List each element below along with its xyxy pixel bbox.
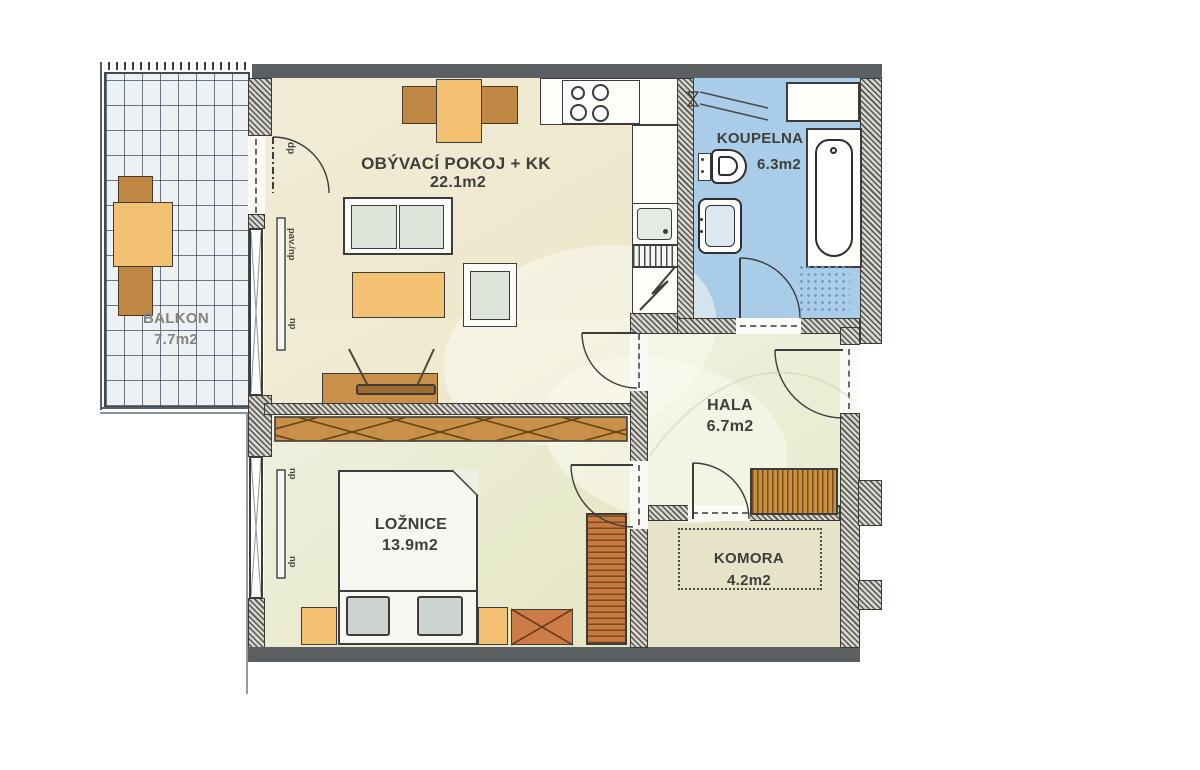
fridge (632, 267, 678, 315)
living-hall-door-jamb (638, 334, 640, 388)
burner-icon (571, 86, 585, 100)
storage-label: KOMORA (714, 550, 784, 567)
wall-left-mid (248, 214, 265, 229)
bath-mat (798, 264, 850, 312)
sink-tap-icon (663, 229, 668, 234)
bedroom-hall-door-jamb (638, 465, 640, 525)
entrance-door-opening (840, 345, 860, 413)
storage-area: 4.2m2 (727, 572, 771, 589)
balcony-railing (100, 62, 252, 70)
bathtub-inner (815, 139, 853, 257)
balcony-area: 7.7m2 (154, 331, 198, 348)
wall-right-bathroom (860, 78, 882, 344)
bedroom-label: LOŽNICE (375, 516, 447, 534)
sofa-cushion (399, 205, 444, 249)
burner-icon (592, 84, 609, 101)
living-room-area: 22.1m2 (430, 174, 486, 192)
hall-wardrobe (750, 468, 838, 515)
wall-left-upper (248, 78, 272, 136)
hall-area: 6.7m2 (707, 418, 754, 436)
balcony-edge-left (100, 62, 102, 410)
balcony-edge-bottom (100, 407, 250, 409)
wall-kitchen-corner (630, 313, 678, 334)
bathroom-door-jamb (740, 325, 797, 327)
washbasin-inner (705, 205, 735, 247)
burner-icon (570, 104, 587, 121)
coffee-table (352, 272, 445, 318)
balcony-chair (118, 262, 153, 316)
tv (356, 384, 436, 395)
kitchen-counter-side (632, 125, 678, 205)
dining-chair (480, 86, 518, 124)
sofa-cushion (351, 205, 397, 249)
toilet-dot (701, 158, 704, 161)
hall-label: HALA (707, 397, 753, 415)
toilet-bowl-inner (718, 156, 738, 176)
dining-chair (402, 86, 438, 124)
balcony-door-jamb (255, 139, 257, 213)
storage-door-jamb (692, 512, 748, 514)
toilet-tank (698, 153, 711, 181)
bedroom-area: 13.9m2 (382, 537, 438, 555)
pillow (417, 596, 463, 636)
living-window-annotation-1: pav./np (286, 228, 297, 261)
nightstand (301, 607, 337, 645)
basin-dot (700, 218, 703, 221)
nightstand (478, 607, 508, 645)
shaft-window (786, 82, 860, 122)
pillow (346, 596, 390, 636)
balcony-door-annotation: dp (285, 142, 296, 154)
balcony-table (113, 202, 173, 267)
living-room-label: OBÝVACÍ POKOJ + KK (361, 154, 551, 174)
bathroom-label: KOUPELNA (717, 130, 804, 147)
burner-icon (592, 105, 609, 122)
entrance-door-jamb (848, 349, 850, 409)
wall-living-bedroom (264, 403, 632, 415)
basin-dot (700, 230, 703, 233)
dining-table (436, 79, 482, 143)
bathtub-drain-icon (830, 147, 837, 154)
bed-headboard-line (338, 590, 478, 592)
living-window-annotation-2: np (287, 318, 298, 330)
bathroom-area: 6.3m2 (757, 156, 801, 173)
wall-bottom (248, 647, 860, 662)
bedroom-window-annotation-2: np (287, 556, 298, 568)
balcony-label: BALKON (143, 310, 209, 327)
balcony-edge-bottom2 (100, 412, 250, 414)
wall-entrance-top (840, 327, 860, 345)
floor-plan: OBÝVACÍ POKOJ + KK 22.1m2 BALKON 7.7m2 K… (0, 0, 1200, 770)
dish-drainer (632, 245, 678, 267)
wall-bathroom-left (676, 78, 694, 321)
wall-step-2 (858, 580, 882, 610)
bedroom-tall-wardrobe (586, 513, 627, 645)
wall-step-1 (858, 480, 882, 526)
wall-left-lower (248, 598, 265, 650)
armchair-cushion (470, 271, 510, 320)
wall-right-lower (840, 413, 860, 648)
toilet-dot (701, 170, 704, 173)
bedroom-window-annotation-1: np (287, 468, 298, 480)
wall-top (252, 64, 882, 78)
bedroom-chest (511, 609, 573, 645)
bedroom-window (249, 456, 263, 599)
kitchen-sink (637, 208, 672, 240)
living-room-window (249, 228, 263, 396)
